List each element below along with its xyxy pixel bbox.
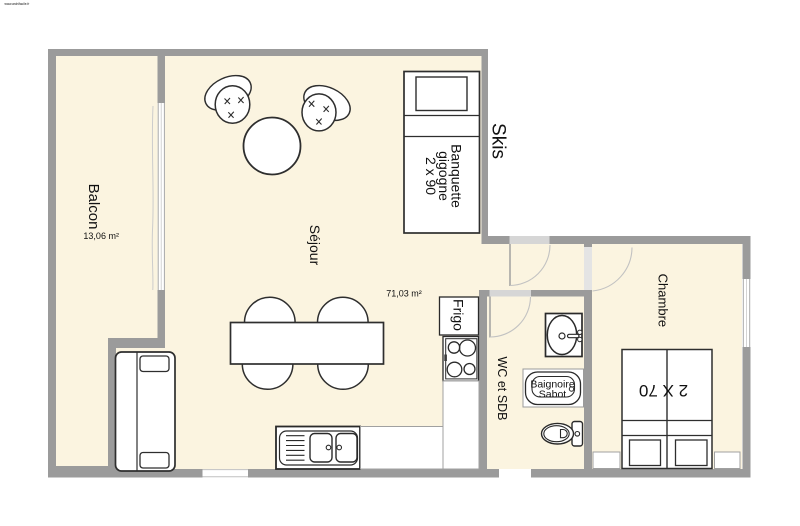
svg-text:Balcon: Balcon (85, 184, 102, 230)
svg-text:Skis: Skis (488, 123, 509, 159)
svg-text:2 x 90: 2 x 90 (423, 157, 439, 195)
svg-text:WC et SDB: WC et SDB (495, 357, 509, 421)
svg-text:Frigo: Frigo (451, 299, 467, 331)
svg-text:71,03 m²: 71,03 m² (386, 289, 422, 299)
svg-text:Séjour: Séjour (307, 225, 323, 266)
svg-text:13,06 m²: 13,06 m² (83, 231, 119, 241)
svg-text:2 X 70: 2 X 70 (639, 381, 688, 400)
svg-text:Chambre: Chambre (656, 274, 671, 327)
svg-text:www.archifacile.fr: www.archifacile.fr (5, 2, 31, 6)
svg-text:Sabot: Sabot (539, 389, 567, 401)
